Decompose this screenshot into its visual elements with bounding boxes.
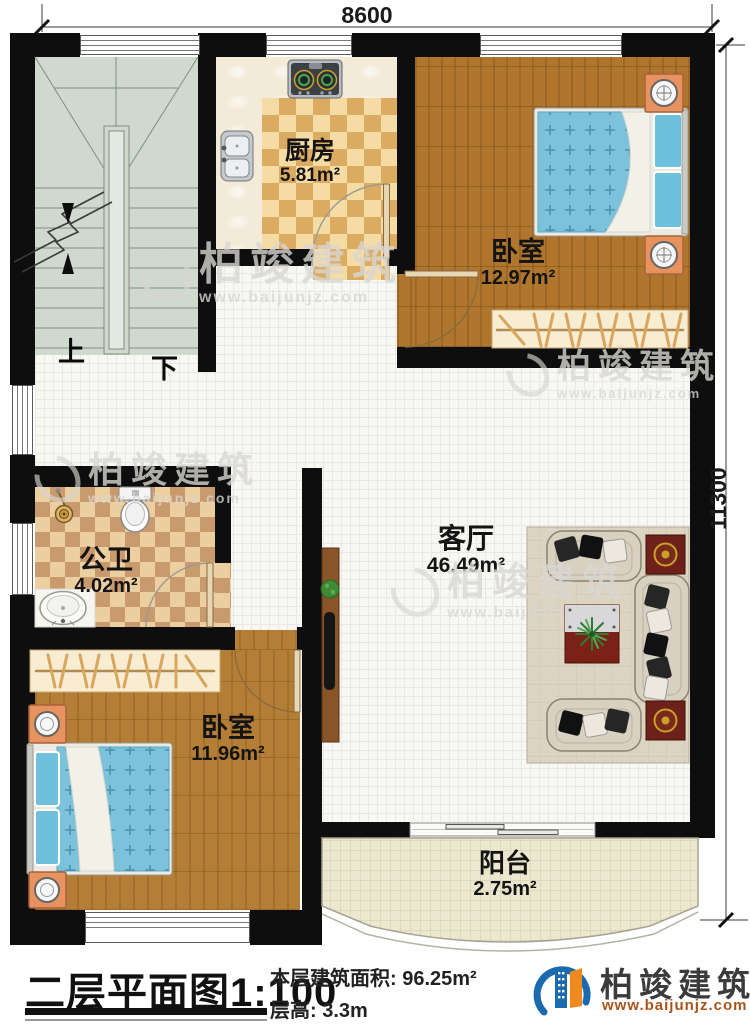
bedroom-bottom-doorway [225, 630, 300, 650]
window [85, 912, 250, 943]
stairwell-floor [35, 57, 198, 355]
wall-segment [595, 822, 690, 838]
wall-segment [10, 33, 35, 385]
wall-segment [198, 33, 216, 372]
wall-segment [352, 33, 480, 57]
title-underline [25, 1008, 267, 1015]
wall-segment [322, 822, 410, 838]
floor-area-text: 本层建筑面积: 96.25m² [270, 962, 477, 991]
wall-segment [10, 466, 231, 487]
window [80, 35, 200, 55]
wall-segment [10, 910, 85, 945]
brand-logo-icon [528, 956, 596, 1024]
kitchen-door-threshold [313, 249, 390, 280]
wall-segment [10, 627, 235, 650]
bedroom-bottom-floor [35, 650, 300, 910]
floor-height-text: 层高: 3.3m [270, 994, 368, 1023]
room-label-bedroom-top: 卧室 12.97m² [458, 238, 578, 289]
brand-url: www.baijunjz.com [602, 997, 747, 1014]
room-label-living: 客厅 46.49m² [406, 524, 526, 577]
room-label-bedroom-bottom: 卧室 11.96m² [168, 714, 288, 765]
stairs-up-label: 上 [58, 330, 85, 369]
wall-segment [690, 33, 715, 838]
wall-segment [216, 249, 313, 266]
bedroom-top-doorway [397, 274, 415, 347]
dimension-right-label: 11300 [692, 438, 744, 560]
room-label-bathroom: 公卫 4.02m² [46, 546, 166, 597]
title-underline-thin [25, 1019, 267, 1021]
window [12, 385, 33, 455]
wall-segment [250, 910, 322, 945]
wall-segment [297, 627, 322, 650]
wall-segment [215, 466, 231, 563]
bedroom-top-floor [415, 57, 690, 347]
window [480, 35, 622, 55]
wall-segment [302, 468, 322, 945]
stairs-down-label: 下 [151, 347, 178, 386]
title-block: 二层平面图1:100 本层建筑面积: 96.25m² 层高: 3.3m 柏竣建筑… [0, 952, 750, 1029]
bathroom-doorway [215, 563, 231, 627]
window [266, 35, 352, 55]
wall-segment [397, 33, 415, 274]
room-label-kitchen: 厨房 5.81m² [250, 138, 370, 186]
window [12, 523, 33, 595]
balcony-railing [322, 912, 698, 951]
wall-segment [397, 347, 690, 368]
dimension-top-label: 8600 [322, 2, 412, 29]
floor-plan-canvas: 8600 11300 厨房 5.81m² 卧室 12.97m² 客厅 46.49… [0, 0, 750, 1029]
room-label-balcony: 阳台 2.75m² [445, 850, 565, 900]
sliding-door [410, 823, 595, 836]
